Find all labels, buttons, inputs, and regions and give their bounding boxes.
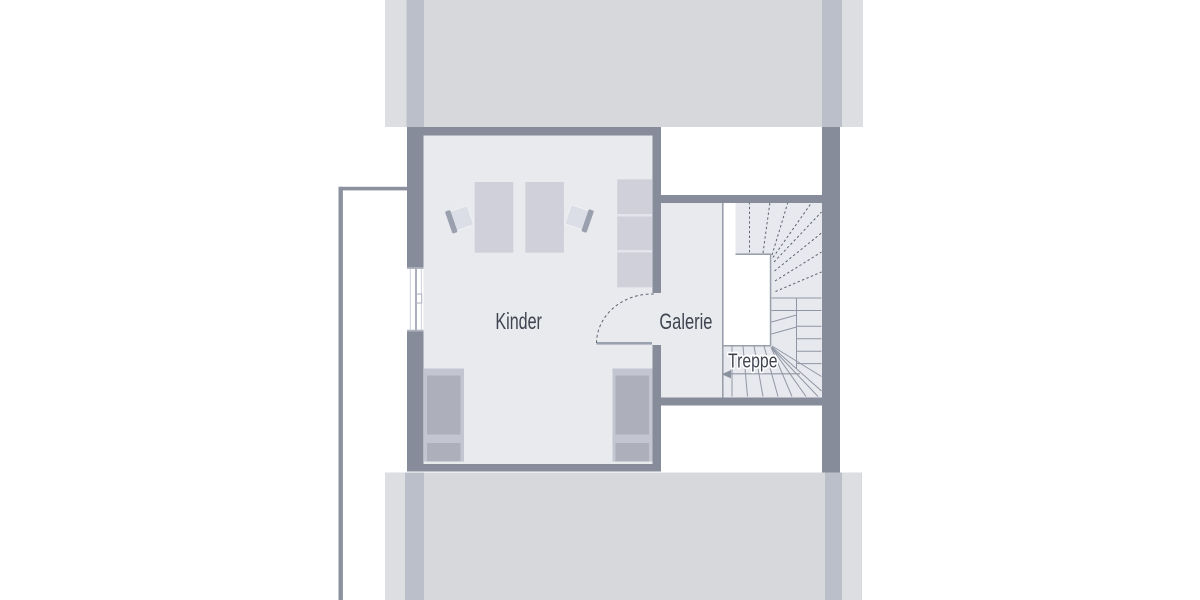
svg-text:Kinder: Kinder — [495, 308, 542, 334]
svg-text:Treppe: Treppe — [728, 351, 778, 373]
svg-text:Galerie: Galerie — [659, 309, 712, 334]
